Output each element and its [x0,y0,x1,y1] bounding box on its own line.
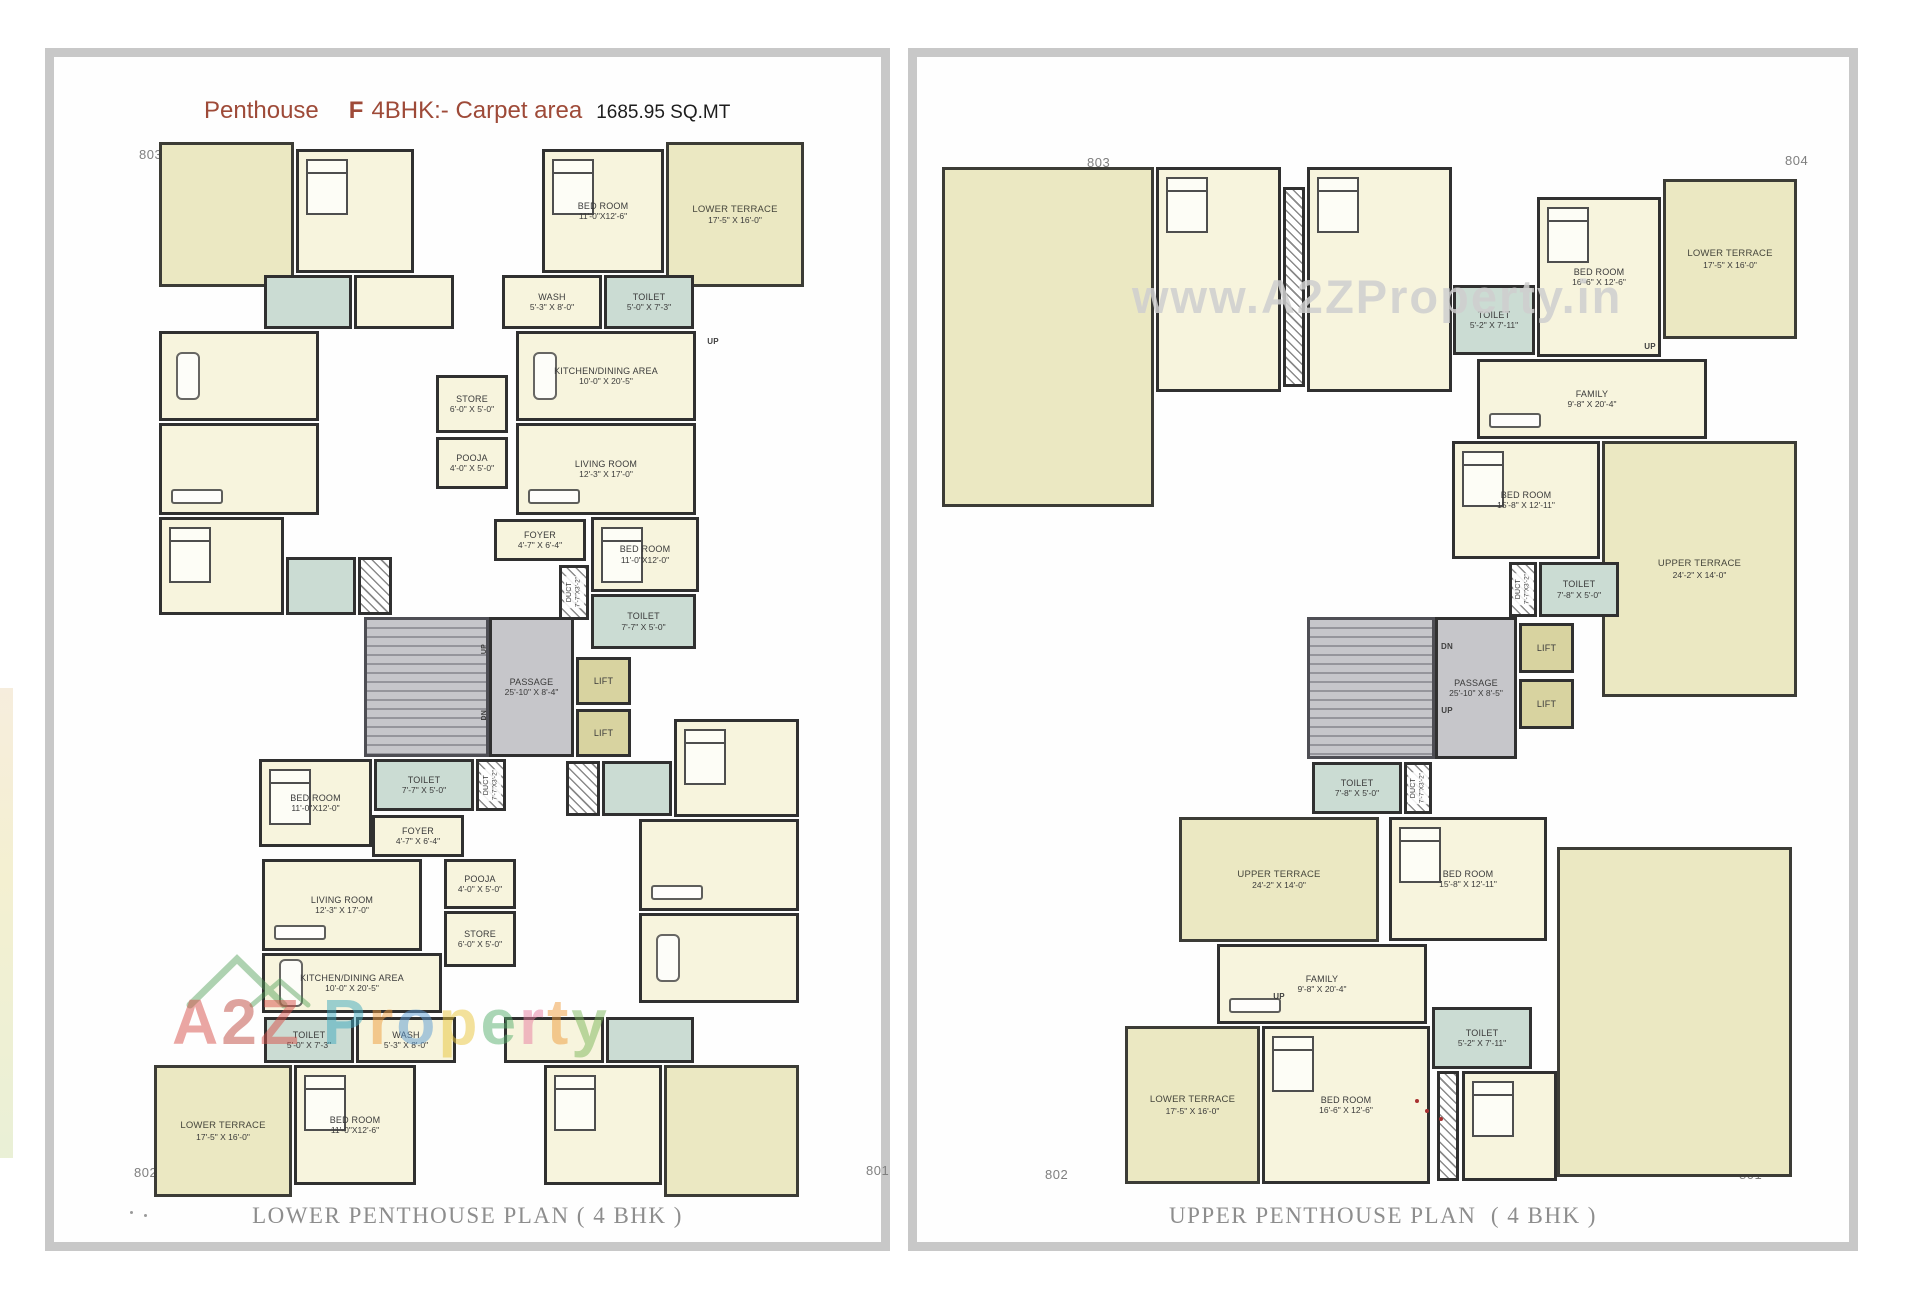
room-room [159,517,284,615]
room-label: DUCT7'-7"X3'-2" [1513,573,1533,605]
room-label: UP [1439,705,1455,717]
room-room [504,1017,604,1063]
room-label: LOWER TERRACE17'-5" X 16'-0" [178,1119,267,1143]
scan-speck [1415,1099,1419,1103]
room-label: LOWER TERRACE17'-5" X 16'-0" [690,203,779,227]
room-lift: LIFT [1519,679,1574,729]
room-label: BED ROOM15'-8" X 12'-11" [1495,489,1557,512]
room-label: FAMILY9'-8" X 20'-4" [1296,973,1349,996]
room-lift: LIFT [576,657,631,705]
room-toilet: TOILET7'-8" X 5'-0" [1312,762,1402,814]
room-bed-room: BED ROOM15'-8" X 12'-11" [1452,441,1600,559]
room-living-room: LIVING ROOM12'-3" X 17'-0" [262,859,422,951]
room-label: TOILET5'-2" X 7'-11" [1456,1027,1508,1050]
direction-mark-up: UP [1437,705,1457,717]
room-label: BED ROOM11'-0"X12'-6" [576,200,631,223]
room-bed-room: BED ROOM16'-6" X 12'-6" [1537,197,1661,357]
bed-icon [1272,1036,1314,1092]
bed-icon [554,1075,596,1131]
room-label: BED ROOM11'-0"X12'-0" [288,792,343,815]
room-label: KITCHEN/DINING AREA10'-0" X 20'-5" [552,365,660,388]
room-label: TOILET7'-8" X 5'-0" [1333,777,1381,800]
room-label: LIFT [592,675,615,688]
table-icon [176,352,200,400]
room-bed-room: BED ROOM11'-0"X12'-0" [259,759,372,847]
room-label: KITCHEN/DINING AREA10'-0" X 20'-5" [298,972,406,995]
room-bed-room: BED ROOM11'-0"X12'-6" [294,1065,416,1185]
room-label: LIVING ROOM12'-3" X 17'-0" [309,894,375,917]
room-label: LOWER TERRACE17'-5" X 16'-0" [1148,1093,1237,1117]
room-foyer: FOYER4'-7" X 6'-4" [372,815,464,857]
room-room [1307,167,1452,392]
room-store: STORE6'-0" X 5'-0" [436,375,508,433]
room-label: PASSAGE25'-10" X 8'-4" [503,676,561,699]
room-duct: DUCT7'-7"X3'-2" [1404,762,1432,814]
room-duct [358,557,392,615]
room-bed-room: BED ROOM16'-6" X 12'-6" [1262,1026,1430,1184]
room-label: UP [479,643,491,655]
direction-mark-dn: DN [478,703,492,727]
room-label: BED ROOM11'-0"X12'-6" [328,1114,383,1137]
room-room [354,275,454,329]
room-upper-terrace: UPPER TERRACE24'-2" X 14'-0" [1602,441,1797,697]
direction-mark-up: UP [702,335,724,348]
room-lower-terrace: LOWER TERRACE17'-5" X 16'-0" [154,1065,292,1197]
room-label: FOYER4'-7" X 6'-4" [516,529,564,552]
room-passage: PASSAGE25'-10" X 8'-5" [1435,617,1517,759]
scan-edge-artifact [0,688,13,1158]
room-label: PASSAGE25'-10" X 8'-5" [1447,677,1505,700]
room-label: UP [1271,991,1287,1003]
room-wash: WASH5'-3" X 8'-0" [356,1017,456,1063]
plan-caption-upper: UPPER PENTHOUSE PLAN ( 4 BHK ) [917,1203,1849,1229]
direction-mark-dn: DN [1437,641,1457,653]
room-label: POOJA4'-0" X 5'-0" [456,873,504,896]
room-label: TOILET7'-7" X 5'-0" [400,774,448,797]
room-room [639,913,799,1003]
room-pooja: POOJA4'-0" X 5'-0" [444,859,516,909]
room-room [639,819,799,911]
room-wet [264,275,352,329]
room-terrace [942,167,1154,507]
scan-page-upper-plan: 803 804 802 801 www.A2ZProperty.in TOILE… [908,48,1858,1251]
room-label: LIFT [1535,698,1558,711]
scan-page-lower-plan: Penthouse F 4BHK:- Carpet area 1685.95 S… [45,48,890,1251]
room-label: UP [1642,341,1658,353]
room-label: DN [479,709,491,722]
room-label: LIFT [1535,642,1558,655]
room-terrace [1557,847,1792,1177]
sofa-icon [171,489,223,504]
sofa-icon [651,885,703,900]
room-room [159,331,319,421]
room-toilet: TOILET7'-8" X 5'-0" [1539,562,1619,617]
room-wet [602,761,672,816]
room-toilet: TOILET7'-7" X 5'-0" [374,759,474,811]
floor-plan-lower: BED ROOM11'-0"X12'-6"LOWER TERRACE17'-5"… [54,57,881,1242]
room-wet [286,557,356,615]
room-label: UP [705,336,721,348]
room-room [296,149,414,273]
room-label: LIVING ROOM12'-3" X 17'-0" [573,458,639,481]
bed-icon [1166,177,1208,233]
table-icon [656,934,680,982]
direction-mark-up: UP [478,637,492,661]
room-toilet: TOILET5'-0" X 7'-3" [264,1017,354,1063]
plan-caption-lower: LOWER PENTHOUSE PLAN ( 4 BHK ) [54,1203,881,1229]
room-duct [1437,1071,1459,1181]
room-terrace [664,1065,799,1197]
room-lift: LIFT [576,709,631,757]
room-label: DUCT7'-7"X3'-2" [481,769,501,801]
bed-icon [1547,207,1589,263]
room-family: FAMILY9'-8" X 20'-4" [1477,359,1707,439]
bed-icon [1317,177,1359,233]
room-label: UPPER TERRACE24'-2" X 14'-0" [1656,557,1743,581]
room-label: DUCT7'-7"X3'-2" [1408,772,1428,804]
room-duct: DUCT7'-7"X3'-2" [1509,562,1537,617]
room-toilet: TOILET5'-0" X 7'-3" [604,275,694,329]
sofa-icon [274,925,326,940]
room-lower-terrace: LOWER TERRACE17'-5" X 16'-0" [666,142,804,287]
direction-mark-up: UP [1639,340,1661,353]
room-label: DN [1439,641,1455,653]
room-duct: DUCT7'-7"X3'-2" [559,565,589,620]
room-toilet: TOILET5'-2" X 7'-11" [1453,285,1535,355]
floor-plan-upper: TOILET5'-2" X 7'-11"BED ROOM16'-6" X 12'… [917,57,1849,1242]
room-label: WASH5'-3" X 8'-0" [528,291,576,314]
scan-speck [1439,1117,1443,1121]
room-duct [566,761,600,816]
room-room [544,1065,662,1185]
room-living-room: LIVING ROOM12'-3" X 17'-0" [516,423,696,515]
room-label: TOILET5'-0" X 7'-3" [625,291,673,314]
bed-icon [169,527,211,583]
room-room [159,423,319,515]
room-label: TOILET5'-2" X 7'-11" [1468,309,1520,332]
room-upper-terrace: UPPER TERRACE24'-2" X 14'-0" [1179,817,1379,942]
bed-icon [306,159,348,215]
room-stairs [1307,617,1435,759]
room-label: TOILET7'-7" X 5'-0" [619,610,667,633]
room-label: STORE6'-0" X 5'-0" [456,928,504,951]
room-lower-terrace: LOWER TERRACE17'-5" X 16'-0" [1125,1026,1260,1184]
room-label: BED ROOM16'-6" X 12'-6" [1317,1094,1375,1117]
direction-mark-up: UP [1269,991,1289,1003]
bed-icon [1472,1081,1514,1137]
room-wash: WASH5'-3" X 8'-0" [502,275,602,329]
room-duct [1283,187,1305,387]
room-label: BED ROOM16'-6" X 12'-6" [1570,266,1628,289]
room-duct: DUCT7'-7"X3'-2" [476,759,506,811]
scan-speck [1425,1109,1429,1113]
room-family: FAMILY9'-8" X 20'-4" [1217,944,1427,1024]
room-label: DUCT7'-7"X3'-2" [564,576,584,608]
room-toilet: TOILET7'-7" X 5'-0" [591,594,696,649]
room-toilet: TOILET5'-2" X 7'-11" [1432,1007,1532,1069]
room-pooja: POOJA4'-0" X 5'-0" [436,437,508,489]
room-room [1156,167,1281,392]
sofa-icon [1489,413,1541,428]
sofa-icon [528,489,580,504]
room-room [1462,1071,1557,1181]
room-room [674,719,799,817]
bed-icon [1399,827,1441,883]
room-lift: LIFT [1519,623,1574,673]
room-label: BED ROOM11'-0"X12'-0" [618,543,673,566]
room-lower-terrace: LOWER TERRACE17'-5" X 16'-0" [1663,179,1797,339]
room-label: STORE6'-0" X 5'-0" [448,393,496,416]
room-wet [606,1017,694,1063]
room-label: WASH5'-3" X 8'-0" [382,1029,430,1052]
room-passage: PASSAGE25'-10" X 8'-4" [489,617,574,757]
room-label: FAMILY9'-8" X 20'-4" [1566,388,1619,411]
room-label: TOILET5'-0" X 7'-3" [285,1029,333,1052]
room-label: LIFT [592,727,615,740]
room-bed-room: BED ROOM11'-0"X12'-0" [591,517,699,592]
room-label: LOWER TERRACE17'-5" X 16'-0" [1685,247,1774,271]
room-foyer: FOYER4'-7" X 6'-4" [494,519,586,561]
room-bed-room: BED ROOM15'-8" X 12'-11" [1389,817,1547,941]
room-stairs [364,617,489,757]
room-store: STORE6'-0" X 5'-0" [444,911,516,967]
room-label: POOJA4'-0" X 5'-0" [448,452,496,475]
scanned-floor-plan-page: { "palette":{ "wall":"#303030", "room_fi… [0,0,1920,1314]
room-label: TOILET7'-8" X 5'-0" [1555,578,1603,601]
room-bed-room: BED ROOM11'-0"X12'-6" [542,149,664,273]
room-label: UPPER TERRACE24'-2" X 14'-0" [1235,868,1322,892]
room-kitchen-dining-area: KITCHEN/DINING AREA10'-0" X 20'-5" [516,331,696,421]
room-label: FOYER4'-7" X 6'-4" [394,825,442,848]
room-label: BED ROOM15'-8" X 12'-11" [1437,868,1499,891]
bed-icon [684,729,726,785]
room-terrace [159,142,294,287]
watermark-roof-icon [182,947,312,1011]
